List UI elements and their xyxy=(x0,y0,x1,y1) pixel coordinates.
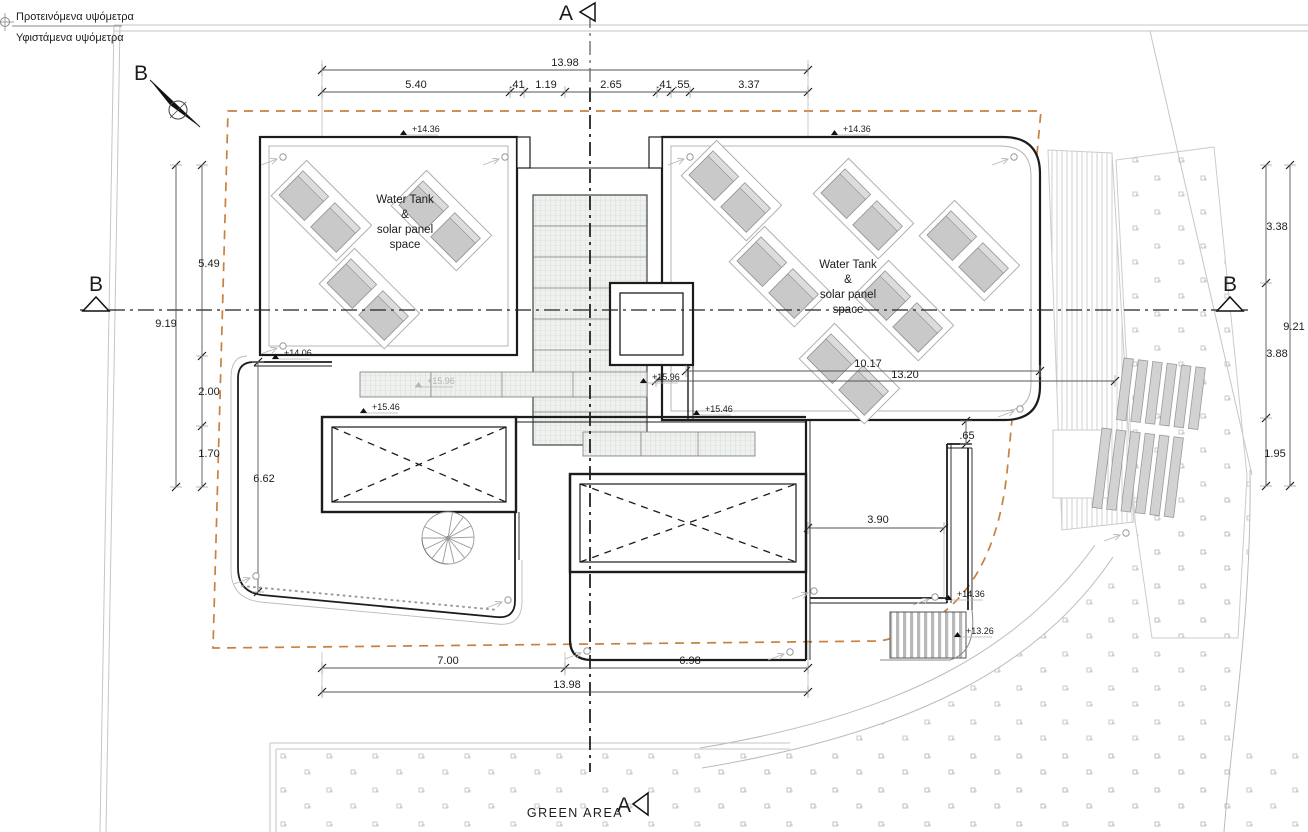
dim-right-total: 9.21 xyxy=(1283,321,1304,333)
dim-left-total: 9.19 xyxy=(155,318,176,330)
elev-parapet-1: +15.46 xyxy=(372,402,400,412)
watertank-right-1: Water Tank xyxy=(819,259,877,271)
dim-left-seg-1: 5.49 xyxy=(198,258,219,270)
north-arrow-icon xyxy=(150,80,200,127)
dim-left-wall: 6.62 xyxy=(253,473,274,485)
roof-void-center xyxy=(570,474,806,572)
dim-top-seg-3: 1.19 xyxy=(535,79,556,91)
dim-top-seg-5: .41 xyxy=(656,79,671,91)
site-plan-drawing: 13.985.40.411.192.65.41.553.375.499.192.… xyxy=(0,0,1308,832)
elev-terrace-right: +14.36 xyxy=(957,589,985,599)
section-b-left: B xyxy=(89,273,103,296)
pergola-strip-2 xyxy=(583,432,755,456)
elev-steps: +13.26 xyxy=(966,626,994,636)
dim-bottom-left: 7.00 xyxy=(437,655,458,667)
watertank-left-4: space xyxy=(390,239,421,251)
dim-top-seg-7: 3.37 xyxy=(738,79,759,91)
green-area-label: GREEN AREA xyxy=(527,806,623,820)
dim-bottom-total: 13.98 xyxy=(553,679,581,691)
watertank-left-3: solar panel xyxy=(377,224,433,236)
legend-existing: Υφιστάμενα υψόμετρα xyxy=(16,32,124,44)
dim-roof-width: 10.17 xyxy=(854,358,882,370)
roof-void-left xyxy=(322,417,516,512)
dim-top-seg-6: .55 xyxy=(674,79,689,91)
watertank-left-1: Water Tank xyxy=(376,194,434,206)
elev-roof-right: +14.36 xyxy=(843,124,871,134)
section-a-bottom: A xyxy=(617,794,631,817)
dim-top-seg-1: 5.40 xyxy=(405,79,426,91)
elev-pergola-1: +15.96 xyxy=(427,376,455,386)
elev-parapet-2: +15.46 xyxy=(705,404,733,414)
watertank-right-4: space xyxy=(833,304,864,316)
dim-terrace-width: 3.90 xyxy=(867,514,888,526)
section-a-top: A xyxy=(559,2,573,25)
watertank-left-2: & xyxy=(401,209,409,221)
dim-top-total: 13.98 xyxy=(551,57,579,69)
watertank-right-2: & xyxy=(844,274,852,286)
dim-roof-width-2: 13.20 xyxy=(891,369,919,381)
section-arrow-b-left xyxy=(83,297,109,311)
legend-proposed: Προτεινόμενα υψόμετρα xyxy=(16,11,134,23)
watertank-right-3: solar panel xyxy=(820,289,876,301)
pergola-strip-1 xyxy=(360,372,647,397)
dim-top-seg-4: 2.65 xyxy=(600,79,621,91)
elev-pergola-2: +15.96 xyxy=(652,372,680,382)
skylight-square xyxy=(610,283,693,365)
elev-terrace-left: +14.06 xyxy=(284,348,312,358)
exterior-steps xyxy=(890,612,966,658)
dim-right-seg-1: 3.38 xyxy=(1266,221,1287,233)
dim-top-seg-2: .41 xyxy=(509,79,524,91)
site-plan-page: 13.985.40.411.192.65.41.553.375.499.192.… xyxy=(0,0,1308,832)
dim-right-seg-2: 3.88 xyxy=(1266,348,1287,360)
dim-parapet-offset: .65 xyxy=(959,430,974,442)
dim-left-seg-2: 2.00 xyxy=(198,386,219,398)
section-arrow-a-top xyxy=(580,3,595,21)
elev-roof-left: +14.36 xyxy=(412,124,440,134)
dim-left-seg-3: 1.70 xyxy=(198,448,219,460)
dim-right-seg-3: 1.95 xyxy=(1264,448,1285,460)
north-label: B xyxy=(134,62,148,85)
spiral-stair xyxy=(422,512,474,564)
dim-bottom-right: 6.98 xyxy=(679,655,700,667)
terrace-right-wing xyxy=(810,444,973,660)
section-b-right: B xyxy=(1223,273,1237,296)
